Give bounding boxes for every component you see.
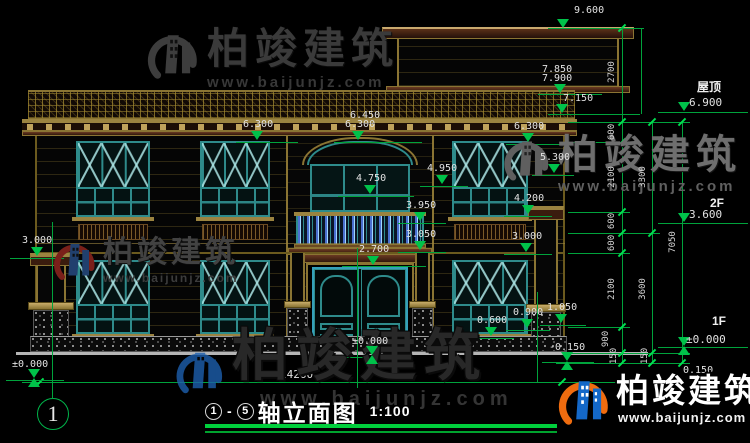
drawing-title: 1 - 5 轴立面图 1:100: [205, 398, 410, 424]
elevation-label: 3.950: [406, 200, 436, 211]
elevation-label: 3.000: [22, 235, 52, 246]
axis-to-bubble: 5: [237, 403, 254, 420]
elevation-marker-icon: [678, 346, 690, 355]
elevation-label: 5.300: [540, 152, 570, 163]
elevation-marker-icon: [561, 352, 573, 361]
elevation-label: 4.200: [514, 193, 544, 204]
elevation-level-line: [398, 252, 446, 253]
elevation-level-line: [236, 142, 298, 143]
elevation-label: 9.600: [574, 5, 604, 16]
sill: [448, 217, 532, 221]
brand-logo-icon: [50, 238, 98, 286]
brand-logo-icon: [143, 28, 201, 86]
watermark-mid-right: 柏竣建筑www.baijunjz.com: [500, 135, 742, 195]
dimension-text: 150: [640, 348, 650, 364]
dim-extension-line: [52, 384, 53, 399]
elevation-marker-icon: [414, 241, 426, 250]
dimension-text: 600: [607, 213, 617, 229]
elevation-marker-icon: [366, 346, 378, 355]
title-scale: 1:100: [370, 403, 411, 419]
elevation-marker-icon: [485, 327, 497, 336]
storey-elevation: 3.600: [689, 208, 722, 221]
title-text: 轴立面图: [258, 394, 358, 428]
balcony-balusters: [296, 216, 424, 244]
window-2f-left-1: [76, 141, 150, 217]
elevation-level-line: [540, 325, 586, 326]
elevation-marker-icon: [31, 247, 43, 256]
elevation-level-line: [338, 196, 414, 197]
brand-url: www.baijunjz.com: [103, 271, 239, 285]
elevation-label: 2.700: [359, 244, 389, 255]
brand-name: 柏竣建筑: [558, 135, 742, 175]
elevation-level-line: [342, 266, 426, 267]
cad-elevation-drawing: 1 1 - 5 轴立面图 1:100 14260 柏竣建筑www.baijunj…: [0, 0, 750, 443]
elevation-marker-icon: [436, 175, 448, 184]
axis-number: 1: [48, 401, 59, 427]
pedestal-cap: [284, 301, 311, 308]
elevation-marker-icon: [366, 355, 378, 364]
pedestal-cap: [28, 302, 74, 310]
dim-line: [568, 122, 690, 123]
storey-elevation: 6.900: [689, 96, 722, 109]
axis-range-dash: -: [227, 403, 232, 419]
elevation-marker-icon: [352, 131, 364, 140]
elevation-marker-icon: [522, 133, 534, 142]
dimension-text: 2100: [607, 278, 617, 300]
elevation-label: 0.600: [477, 315, 507, 326]
elevation-marker-icon: [555, 314, 567, 323]
elevation-marker-icon: [522, 205, 534, 214]
elevation-level-line: [420, 186, 468, 187]
elevation-label: 6.300: [243, 119, 273, 130]
elevation-label: 4.950: [427, 163, 457, 174]
brand-name: 柏竣建筑: [616, 374, 750, 407]
elevation-label: 4.750: [356, 173, 386, 184]
roof-tiles: [28, 92, 575, 119]
axis-from-bubble: 1: [205, 403, 222, 420]
dimension-text: 900: [601, 331, 611, 347]
storey-label: 屋顶: [697, 78, 721, 95]
brand-logo-icon: [554, 374, 612, 432]
sill: [72, 217, 154, 221]
elevation-label: 6.300: [345, 119, 375, 130]
elevation-marker-icon: [554, 84, 566, 93]
dim-extension-line: [537, 292, 538, 383]
storey-elevation: ±0.000: [686, 333, 726, 346]
watermark-top-left: 柏竣建筑www.baijunjz.com: [143, 28, 399, 91]
elevation-label: 6.300: [514, 121, 544, 132]
dimension-text: 600: [607, 124, 617, 140]
center-window-2f: [310, 164, 410, 212]
elevation-marker-icon: [521, 319, 533, 328]
pedestal-cap: [409, 301, 436, 308]
elevation-level-line: [548, 114, 640, 115]
elevation-marker-icon: [367, 256, 379, 265]
brand-url: www.baijunjz.com: [618, 410, 750, 425]
brand-logo-icon: [172, 346, 226, 400]
storey-level-line: [658, 223, 748, 224]
dimension-text: 7050: [668, 231, 678, 253]
elevation-label: ±0.000: [12, 359, 48, 370]
dimension-text: 2700: [607, 61, 617, 83]
eave-dentils: [22, 123, 577, 131]
dimension-text: 600: [607, 235, 617, 251]
elevation-marker-icon: [251, 131, 263, 140]
elevation-label: 7.150: [563, 93, 593, 104]
dim-line: [568, 233, 660, 234]
watermark-bottom-right-logo: 柏竣建筑www.baijunjz.com: [554, 374, 750, 432]
elevation-label: -0.150: [549, 342, 585, 353]
penthouse-wall: [397, 39, 619, 86]
title-underline: [205, 424, 557, 428]
elevation-marker-icon: [364, 185, 376, 194]
elevation-label: 3.000: [512, 231, 542, 242]
elevation-label: ±0.000: [352, 336, 388, 347]
dimension-text: 2100: [607, 166, 617, 188]
elevation-level-line: [398, 223, 446, 224]
brand-url: www.baijunjz.com: [558, 178, 742, 195]
axis-bubble: 1: [37, 398, 69, 430]
dimension-text: 150: [609, 348, 619, 364]
elevation-marker-icon: [561, 361, 573, 370]
elevation-level-line: [548, 28, 644, 29]
elevation-level-line: [334, 142, 422, 143]
brand-name: 柏竣建筑: [207, 28, 399, 70]
door-pillar-left: [290, 253, 305, 303]
elevation-marker-icon: [28, 369, 40, 378]
elevation-marker-icon: [28, 378, 40, 387]
window-2f-left-2: [200, 141, 270, 217]
storey-level-line: [658, 347, 748, 348]
storey-level-line: [658, 112, 748, 113]
elevation-marker-icon: [548, 164, 560, 173]
sill: [196, 217, 274, 221]
elevation-level-line: [504, 254, 552, 255]
brand-url: www.baijunjz.com: [207, 74, 399, 91]
door-transom: [302, 254, 418, 263]
watermark-mid-left: 柏竣建筑www.baijunjz.com: [50, 238, 239, 286]
dim-extension-line: [622, 28, 623, 363]
storey-label: 1F: [712, 314, 726, 328]
dim-extension-line: [641, 28, 642, 114]
elevation-label: 0.900: [513, 307, 543, 318]
elevation-marker-icon: [556, 104, 568, 113]
dimension-text: 3600: [638, 278, 648, 300]
title-underline-2: [205, 431, 557, 433]
dimension-text: 3300: [638, 166, 648, 188]
elevation-label: 7.900: [542, 73, 572, 84]
elevation-marker-icon: [557, 19, 569, 28]
dim-line: [568, 353, 690, 354]
elevation-level-line: [504, 216, 552, 217]
brand-name: 柏竣建筑: [103, 238, 239, 268]
elevation-label: 1.050: [547, 302, 577, 313]
elevation-label: 3.050: [406, 229, 436, 240]
elevation-marker-icon: [520, 243, 532, 252]
elevation-marker-icon: [414, 212, 426, 221]
door-pillar-right: [415, 253, 430, 303]
